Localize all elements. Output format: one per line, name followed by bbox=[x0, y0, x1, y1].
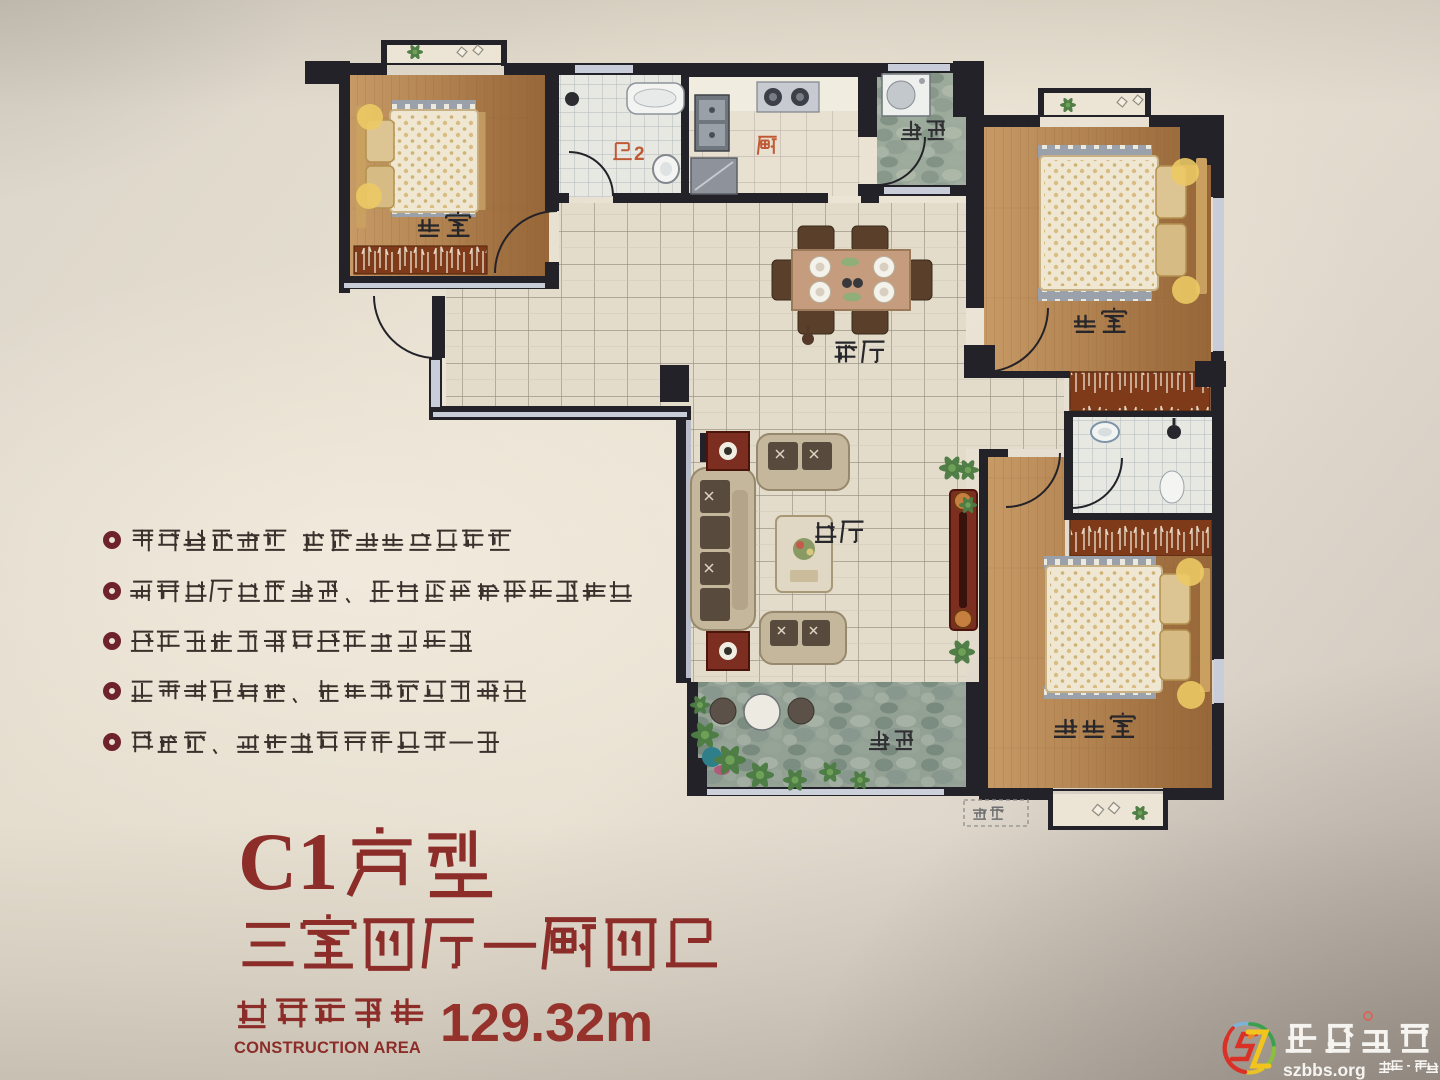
svg-text:CONSTRUCTION AREA: CONSTRUCTION AREA bbox=[234, 1039, 421, 1057]
svg-text:129.32m: 129.32m bbox=[440, 993, 653, 1053]
svg-text:2: 2 bbox=[634, 144, 645, 165]
svg-text:szbbs.org: szbbs.org bbox=[1283, 1060, 1366, 1080]
svg-text:C1: C1 bbox=[238, 816, 338, 907]
